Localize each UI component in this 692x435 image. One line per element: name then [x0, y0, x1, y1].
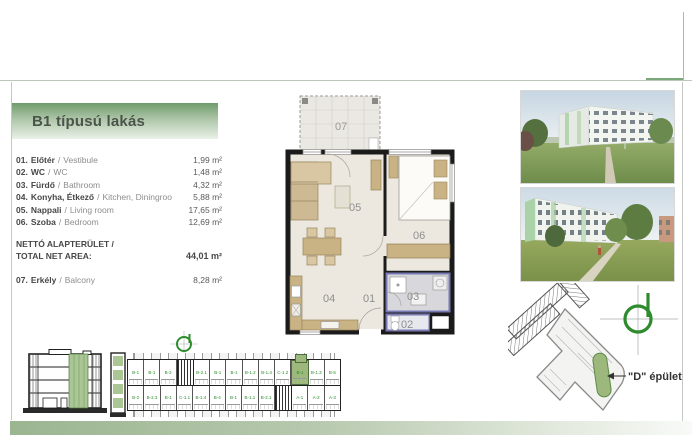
strip-unit: A-2 — [308, 386, 324, 411]
strip-unit: B-1.1 — [242, 386, 258, 411]
strip-unit: B-2.1 — [194, 360, 210, 385]
balcony-07: 07 — [300, 96, 380, 152]
strip-unit-interior-lines — [276, 379, 289, 384]
strip-unit-interior-lines — [326, 404, 339, 409]
strip-unit-interior-lines — [145, 404, 158, 409]
strip-unit: B-1 — [226, 360, 242, 385]
strip-unit-interior-lines — [194, 404, 207, 409]
strip-unit: B-5 — [325, 360, 340, 385]
apartment-floor-plan: 07 — [283, 86, 463, 338]
strip-unit: B-1 — [128, 360, 144, 385]
building-cluster-outline — [537, 309, 624, 410]
header-rule-vertical — [683, 12, 684, 80]
strip-unit-interior-lines — [178, 404, 191, 409]
room-row: 02. WC / WC 1,48 m² — [16, 166, 222, 178]
rendering-photo-1 — [520, 90, 675, 184]
strip-unit: B-1.4 — [259, 360, 275, 385]
header-rule-accent — [646, 78, 684, 80]
strip-unit-interior-lines — [310, 379, 323, 384]
strip-unit-interior-lines — [211, 404, 224, 409]
shaft — [431, 315, 450, 330]
apartment-type-title-box: B1 típusú lakás — [12, 103, 218, 139]
strip-unit-interior-lines — [293, 378, 306, 383]
svg-text:03: 03 — [407, 291, 419, 303]
site-plan: "D" épület — [508, 283, 683, 428]
svg-text:05: 05 — [349, 202, 361, 214]
strip-unit: B-1.3 — [309, 360, 325, 385]
room-row: 03. Fürdő / Bathroom 4,32 m² — [16, 179, 222, 191]
strip-unit: B-1 — [144, 360, 160, 385]
strip-unit-interior-lines — [309, 404, 322, 409]
strip-unit-interior-lines — [326, 379, 339, 384]
strip-unit: B-1 — [226, 386, 242, 411]
strip-unit-interior-lines — [227, 379, 240, 384]
strip-unit: B-2.3 — [144, 386, 160, 411]
strip-unit-interior-lines — [243, 404, 256, 409]
header-rule — [0, 80, 692, 81]
page-title: B1 típusú lakás — [12, 113, 145, 130]
strip-row-bottom: B-2B-2.3B-1C-1.1B-1.4B-4B-1B-1.1B-2.1A-1… — [128, 386, 340, 411]
total-label-en: TOTAL NET AREA: — [16, 250, 172, 262]
strip-balconies-bottom — [133, 411, 335, 417]
strip-unit: B-1 — [161, 386, 177, 411]
apartment-datasheet-page: B1 típusú lakás 01. Előtér / Vestibule 1… — [0, 0, 692, 435]
strip-staircase — [275, 386, 292, 411]
building-end-section — [110, 352, 126, 418]
strip-unit: A-3 — [325, 386, 340, 411]
svg-text:07: 07 — [335, 121, 347, 133]
total-area-value: 44,01 m² — [172, 250, 222, 262]
wardrobe — [387, 244, 450, 258]
strip-unit-interior-lines — [129, 379, 142, 384]
strip-unit-interior-lines — [227, 404, 240, 409]
compass-d-logo-icon — [600, 285, 678, 355]
strip-row-top: B-1B-1B-2B-2.1B-1B-1B-1.2B-1.4C-1.2B-1B-… — [128, 360, 340, 386]
strip-unit-interior-lines — [260, 404, 273, 409]
section-highlight — [69, 354, 88, 408]
strip-unit: A-1 — [292, 386, 308, 411]
room-row: 01. Előtér / Vestibule 1,99 m² — [16, 154, 222, 166]
strip-unit: B-2 — [128, 386, 144, 411]
strip-unit: B-4 — [210, 386, 226, 411]
strip-unit-interior-lines — [211, 379, 224, 384]
strip-unit-interior-lines — [162, 404, 175, 409]
total-label-hu: NETTÓ ALAPTERÜLET / — [16, 238, 222, 250]
room-row: 06. Szoba / Bedroom 12,69 m² — [16, 216, 222, 228]
strip-unit: B-2 — [160, 360, 176, 385]
room-row: 04. Konyha, Étkező / Kitchen, Diningroom… — [16, 191, 222, 203]
svg-text:01: 01 — [363, 293, 375, 305]
strip-unit-interior-lines — [195, 379, 208, 384]
svg-text:02: 02 — [401, 319, 413, 331]
strip-unit: C-1.2 — [275, 360, 291, 385]
strip-staircase — [177, 360, 194, 385]
floor-strip-plan: B-1B-1B-2B-2.1B-1B-1B-1.2B-1.4C-1.2B-1B-… — [127, 353, 341, 417]
room-area-list: 01. Előtér / Vestibule 1,99 m² 02. WC / … — [16, 154, 222, 287]
rendering-photo-2 — [520, 187, 675, 282]
strip-unit: B-1 — [210, 360, 226, 385]
strip-unit-interior-lines — [161, 379, 174, 384]
strip-unit: B-1.4 — [193, 386, 209, 411]
balcony-row: 07. Erkély / Balcony 8,28 m² — [16, 274, 222, 286]
strip-unit-interior-lines — [244, 379, 257, 384]
strip-unit-interior-lines — [145, 379, 158, 384]
building-section — [23, 346, 107, 420]
strip-unit: C-1.1 — [177, 386, 193, 411]
strip-unit-interior-lines — [129, 404, 142, 409]
strip-unit: B-1.2 — [243, 360, 259, 385]
strip-unit: B-2.1 — [259, 386, 275, 411]
svg-text:04: 04 — [323, 293, 335, 305]
d-building-label: "D" épület — [628, 371, 682, 383]
strip-unit-interior-lines — [293, 404, 306, 409]
strip-unit-interior-lines — [260, 379, 273, 384]
svg-text:06: 06 — [413, 230, 425, 242]
strip-unit: B-1 — [291, 360, 308, 385]
room-row: 05. Nappali / Living room 17,65 m² — [16, 204, 222, 216]
footer-accent-bar — [10, 421, 692, 435]
total-net-area: NETTÓ ALAPTERÜLET / TOTAL NET AREA: 44,0… — [16, 238, 222, 262]
